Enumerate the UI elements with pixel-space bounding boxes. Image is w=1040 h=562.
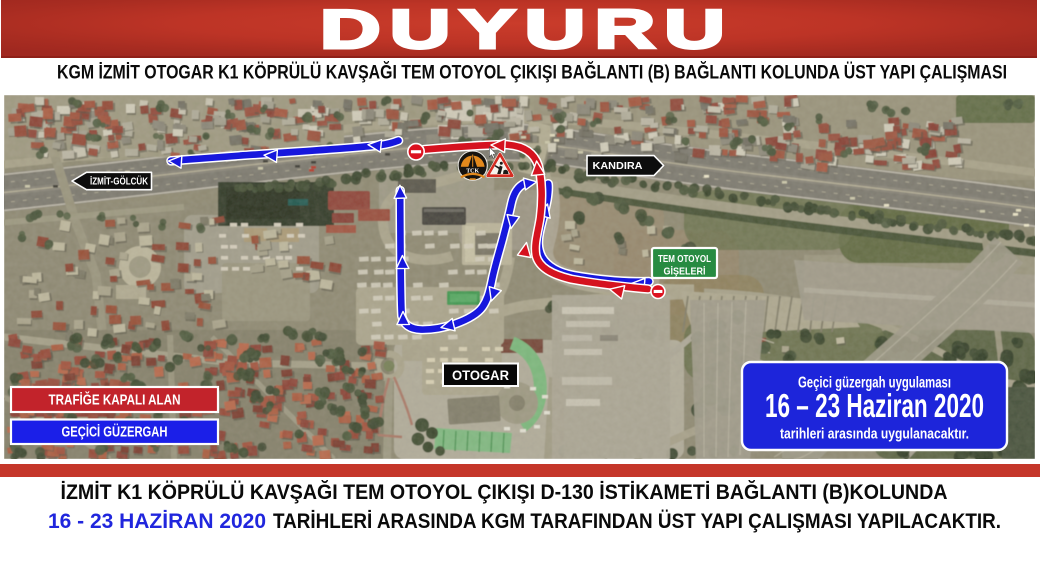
svg-text:KANDIRA: KANDIRA <box>593 160 643 172</box>
svg-text:GEÇİCİ GÜZERGAH: GEÇİCİ GÜZERGAH <box>62 424 168 441</box>
svg-text:TRAFİĞE KAPALI ALAN: TRAFİĞE KAPALI ALAN <box>49 391 181 409</box>
svg-text:tarihleri arasında uygulanacak: tarihleri arasında uygulanacaktır. <box>780 427 969 443</box>
svg-text:OTOGAR: OTOGAR <box>452 368 509 383</box>
svg-text:16 - 23 HAZİRAN 2020: 16 - 23 HAZİRAN 2020 <box>48 509 266 533</box>
svg-text:16 – 23 Haziran 2020: 16 – 23 Haziran 2020 <box>765 387 984 424</box>
svg-text:İZMİT K1 KÖPRÜLÜ KAVŞAĞI TEM O: İZMİT K1 KÖPRÜLÜ KAVŞAĞI TEM OTOYOL ÇIKI… <box>61 480 948 504</box>
svg-text:DUYURU: DUYURU <box>320 0 734 58</box>
svg-text:İZMİT-GÖLCÜK: İZMİT-GÖLCÜK <box>90 175 148 188</box>
svg-text:TEM OTOYOL: TEM OTOYOL <box>658 253 711 265</box>
svg-text:GİŞELERİ: GİŞELERİ <box>664 264 706 277</box>
svg-text:KGM İZMİT OTOGAR K1 KÖPRÜLÜ KA: KGM İZMİT OTOGAR K1 KÖPRÜLÜ KAVŞAĞI TEM … <box>57 62 1007 84</box>
svg-text:TARİHLERİ ARASINDA KGM TARAFIN: TARİHLERİ ARASINDA KGM TARAFINDAN ÜST YA… <box>273 508 1001 533</box>
